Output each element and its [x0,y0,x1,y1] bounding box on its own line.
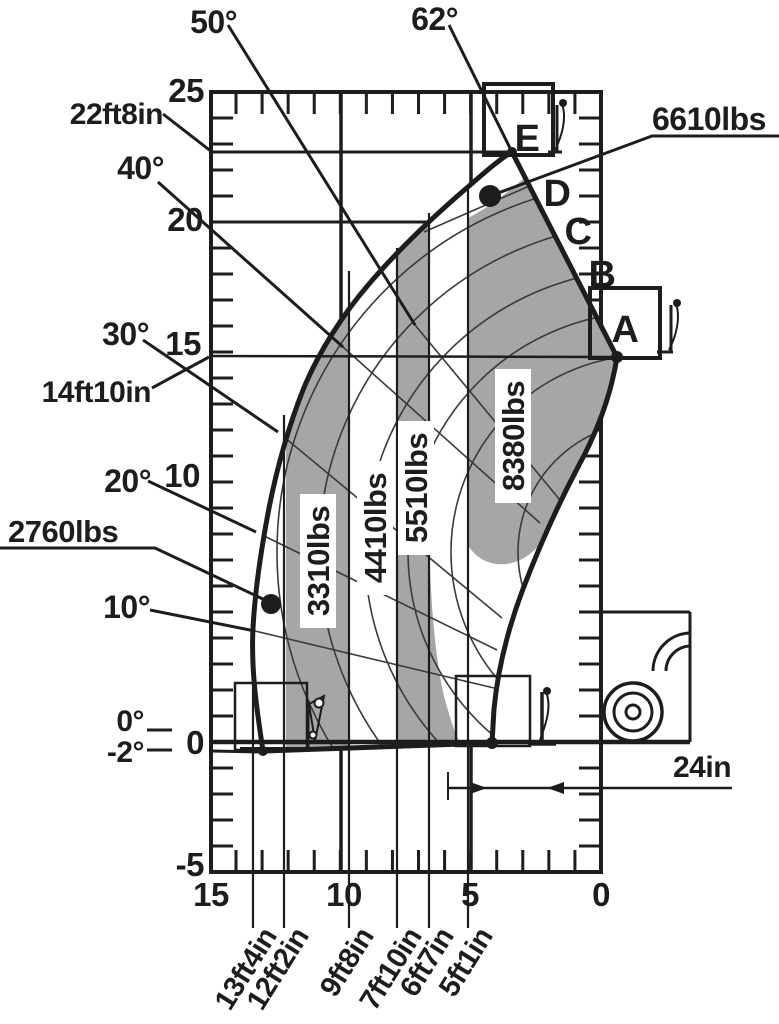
zone-label-5510lbs: 5510lbs [398,421,434,555]
y-tick-20: 20 [167,201,203,238]
angle-30: 30° [102,316,149,352]
load-center-24in: 24in [673,751,731,784]
zone-label-3310lbs: 3310lbs [300,494,336,628]
capacity-dot [258,746,268,756]
section-letter-D: D [544,173,571,215]
zone-label-text: 3310lbs [301,506,336,616]
x-tick-5: 5 [461,876,479,913]
capacity-dot [479,185,501,207]
capacity-2760lbs: 2760lbs [8,514,118,549]
x-tick-10: 10 [326,876,362,913]
machine-silhouette [601,612,691,742]
arrow-left-icon [547,782,564,794]
section-letter-A: A [612,309,639,351]
capacity-6610lbs: 6610lbs [652,101,766,137]
x-tick-0: 0 [592,876,610,913]
line-14ft10in [211,356,616,357]
arrow-right-icon [470,782,487,794]
section-letter-C: C [565,211,592,253]
zone-label-4410lbs: 4410lbs [357,461,393,595]
load-chart-page: 252015100-515105050°62°40°30°20°10°0°-2°… [0,0,779,1024]
leader-62deg [449,25,511,150]
angle-0: 0° [116,705,144,738]
zone-band-8380 [468,175,617,564]
leader-10deg [150,610,255,631]
zone-label-text: 8380lbs [496,381,531,491]
section-letter-E: E [515,118,540,160]
leader-22ft8in [163,114,212,152]
section-letter-B: B [589,254,616,296]
load-chart-svg: 252015100-515105050°62°40°30°20°10°0°-2°… [0,0,779,1024]
fender-arc [653,633,691,671]
angle-40: 40° [117,150,164,186]
fork-icon [548,99,567,152]
y-tick-15: 15 [165,325,201,362]
y-tick-0: 0 [186,724,204,761]
angle-62: 62° [411,1,458,37]
angle-50: 50° [190,4,237,40]
y-tick-25: 25 [168,72,204,109]
y-tick-10: 10 [164,457,200,494]
height-14ft10in: 14ft10in [42,376,151,409]
angle-m2: -2° [107,736,144,769]
capacity-dot [611,351,623,363]
zone-label-8380lbs: 8380lbs [495,369,531,503]
angle-10: 10° [103,589,150,625]
angle-20: 20° [104,463,151,499]
zone-label-text: 5510lbs [399,433,434,543]
zone-label-text: 4410lbs [358,473,393,583]
x-tick-15: 15 [193,876,229,913]
capacity-dot [486,737,498,749]
height-22ft8in: 22ft8in [70,98,163,131]
leader-50deg [228,25,415,325]
fork-icon [528,687,556,744]
capacity-dot [261,594,281,614]
